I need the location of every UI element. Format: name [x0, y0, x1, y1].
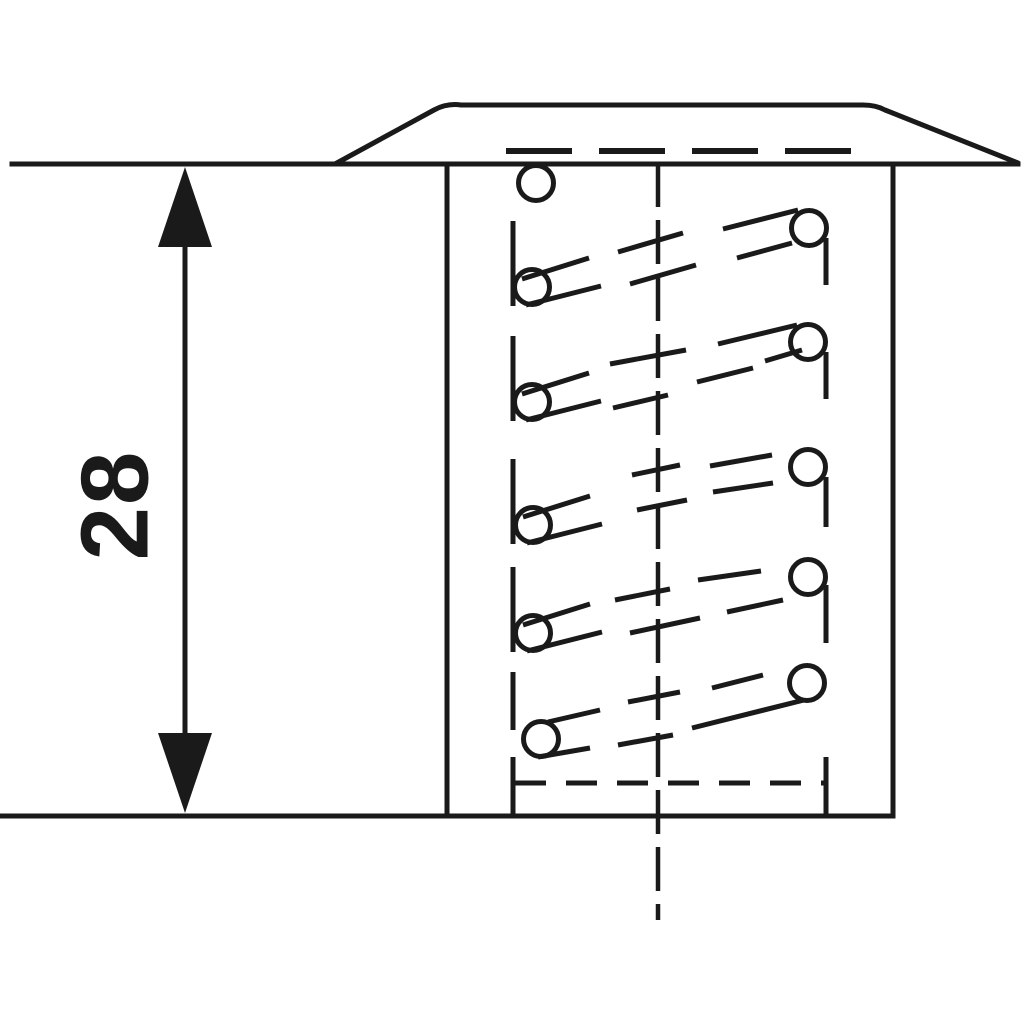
coil-wire-top-circle — [519, 166, 554, 201]
coil-layer — [513, 166, 827, 816]
coil-hidden-dash — [618, 735, 673, 745]
coil-turn-row — [513, 560, 826, 653]
coil-hidden-dash — [630, 265, 696, 284]
coil-wire-line — [548, 710, 600, 722]
coil-turn-row — [513, 450, 826, 545]
coil-wire-line — [527, 632, 602, 651]
coil-wire-line — [723, 210, 798, 229]
coil-hidden-dash — [697, 368, 753, 382]
coil-wire-circle-right — [790, 666, 825, 701]
coil-hidden-dash — [628, 692, 680, 702]
coil-wire-circle-right — [791, 560, 826, 595]
coil-hidden-dash — [713, 483, 773, 492]
coil-hidden-dash — [630, 618, 700, 633]
coil-wire-line — [737, 243, 792, 258]
coil-wire-circle-right — [792, 211, 827, 246]
coil-turn-row — [513, 210, 827, 306]
coil-hidden-dash — [727, 600, 783, 612]
technical-drawing: 28 — [0, 0, 1024, 1024]
coil-hidden-dash — [610, 350, 686, 364]
flange-outline — [335, 105, 1018, 164]
coil-turn-row — [513, 666, 826, 816]
coil-hidden-dash — [710, 455, 772, 466]
coil-hidden-dash — [615, 589, 670, 600]
coil-hidden-dash — [637, 500, 687, 510]
coil-wire-line — [527, 524, 602, 543]
coil-wire-line — [692, 700, 804, 728]
dimension-arrowhead-down — [158, 733, 212, 813]
dimension-label: 28 — [62, 450, 169, 561]
coil-hidden-dash — [698, 571, 761, 580]
coil-wire-line — [526, 401, 601, 420]
coil-wire-circle-left — [524, 722, 559, 757]
dimension-arrowhead-up — [158, 167, 212, 247]
coil-hidden-dash — [618, 233, 683, 252]
coil-wire-line — [526, 286, 601, 305]
coil-wire-line — [718, 325, 797, 344]
coil-hidden-dash — [712, 675, 763, 688]
drawing-canvas: 28 — [0, 0, 1024, 1024]
coil-wire-line — [538, 748, 590, 757]
coil-turn-row — [513, 325, 826, 422]
coil-wire-circle-right — [791, 450, 826, 485]
